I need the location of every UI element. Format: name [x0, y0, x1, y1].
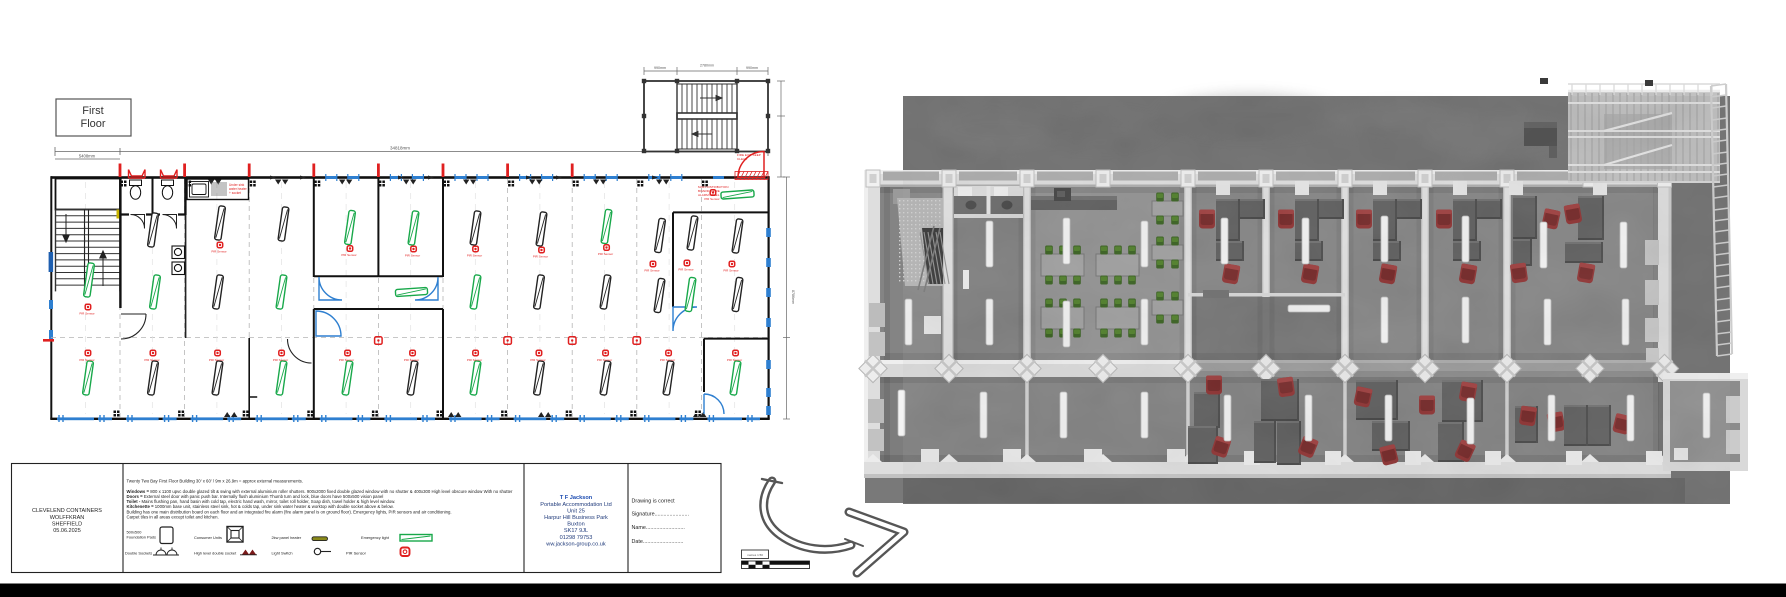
svg-text:Carpet tiles in all areas exce: Carpet tiles in all areas except toilet …	[127, 515, 219, 520]
svg-text:metres 1:50: metres 1:50	[747, 553, 763, 557]
svg-text:PIR Sensor: PIR Sensor	[704, 197, 719, 201]
svg-text:PIR Sensor: PIR Sensor	[273, 358, 288, 362]
svg-text:Unit 25: Unit 25	[567, 508, 585, 514]
svg-text:CLEVELEND CONTAINERS: CLEVELEND CONTAINERS	[32, 508, 102, 514]
svg-text:PIR Sensor: PIR Sensor	[644, 269, 659, 273]
svg-text:First: First	[82, 105, 103, 117]
svg-text:2kw panel heater: 2kw panel heater	[272, 535, 302, 540]
svg-text:Date..........................: Date...........................	[632, 539, 684, 545]
svg-text:Consumer Units: Consumer Units	[194, 535, 222, 540]
svg-text:PIR Sensor: PIR Sensor	[530, 358, 545, 362]
svg-text:ALARM PANEL: ALARM PANEL	[698, 193, 720, 197]
svg-text:05.06.2025: 05.06.2025	[53, 528, 81, 534]
svg-text:Double Sockets: Double Sockets	[125, 551, 152, 556]
svg-text:PIR Sensor: PIR Sensor	[79, 312, 94, 316]
svg-text:Name..........................: Name..........................	[632, 525, 685, 531]
svg-text:Drawing is correct: Drawing is correct	[632, 499, 676, 505]
svg-text:Floor: Floor	[80, 118, 105, 130]
svg-text:PIR Sensor: PIR Sensor	[467, 358, 482, 362]
svg-text:Foundation Pads: Foundation Pads	[127, 535, 156, 540]
svg-text:PIR Sensor: PIR Sensor	[79, 358, 94, 362]
svg-text:High level double socket: High level double socket	[194, 551, 237, 556]
svg-text:CLEAR: CLEAR	[737, 157, 748, 161]
svg-text:PIR Sensor: PIR Sensor	[346, 551, 367, 556]
svg-text:PIR Sensor: PIR Sensor	[533, 255, 548, 259]
svg-text:PIR Sensor: PIR Sensor	[341, 253, 356, 257]
svg-text:Signature.....................: Signature.......................	[632, 512, 690, 518]
svg-text:34818mm: 34818mm	[390, 146, 410, 151]
svg-text:Buxton: Buxton	[567, 522, 584, 528]
svg-text:PIR Sensor: PIR Sensor	[598, 252, 613, 256]
svg-text:PIR Sensor: PIR Sensor	[405, 254, 420, 258]
svg-text:2780mm: 2780mm	[700, 64, 714, 68]
svg-text:PIR Sensor: PIR Sensor	[339, 358, 354, 362]
svg-text:PIR Sensor: PIR Sensor	[597, 358, 612, 362]
svg-text:Emergency light: Emergency light	[361, 535, 390, 540]
svg-text:SHEFFIELD: SHEFFIELD	[52, 522, 82, 528]
svg-text:PIR Sensor: PIR Sensor	[723, 269, 738, 273]
svg-text:+ socket: + socket	[229, 191, 241, 195]
svg-text:PIR Sensor: PIR Sensor	[467, 254, 482, 258]
svg-text:PIR Sensor: PIR Sensor	[678, 268, 693, 272]
svg-text:990mm: 990mm	[654, 66, 666, 70]
svg-text:PIR Sensor: PIR Sensor	[660, 358, 675, 362]
svg-text:5408mm: 5408mm	[79, 154, 96, 159]
svg-text:Harpur Hill Business Park: Harpur Hill Business Park	[544, 515, 608, 521]
svg-text:8786mm: 8786mm	[791, 290, 795, 304]
svg-text:Light Switch: Light Switch	[272, 551, 293, 556]
svg-text:PIR Sensor: PIR Sensor	[404, 358, 419, 362]
svg-text:PIR Sensor: PIR Sensor	[209, 358, 224, 362]
svg-text:PIR Sensor: PIR Sensor	[144, 358, 159, 362]
svg-text:T F Jackson: T F Jackson	[560, 495, 593, 501]
svg-text:01298 79753: 01298 79753	[560, 535, 593, 541]
svg-text:WOLFFKRAN: WOLFFKRAN	[50, 515, 85, 521]
svg-text:990mm: 990mm	[746, 66, 758, 70]
svg-text:SK17 9JL: SK17 9JL	[564, 528, 588, 534]
svg-text:ww.jackson-group.co.uk: ww.jackson-group.co.uk	[545, 541, 606, 547]
svg-text:PIR Sensor: PIR Sensor	[727, 358, 742, 362]
svg-text:Kitchenette = 1000mm base unit: Kitchenette = 1000mm base unit, stainles…	[127, 504, 394, 509]
svg-text:Twenty Two Bay First Floor Bui: Twenty Two Bay First Floor Building 30' …	[127, 479, 304, 484]
svg-text:Portable Accommodation Ltd: Portable Accommodation Ltd	[540, 502, 612, 508]
svg-text:PIR Sensor: PIR Sensor	[211, 250, 226, 254]
